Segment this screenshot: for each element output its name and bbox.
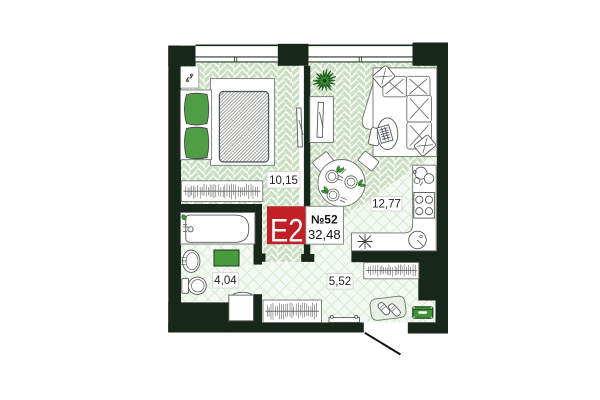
svg-text:32,48: 32,48 [308,227,341,242]
svg-text:12,77: 12,77 [372,199,401,211]
svg-text:№52: №52 [311,212,338,226]
svg-text:4,04: 4,04 [214,275,237,287]
svg-text:E2: E2 [270,213,304,249]
svg-text:5,52: 5,52 [329,276,351,288]
svg-text:10,15: 10,15 [269,175,298,187]
